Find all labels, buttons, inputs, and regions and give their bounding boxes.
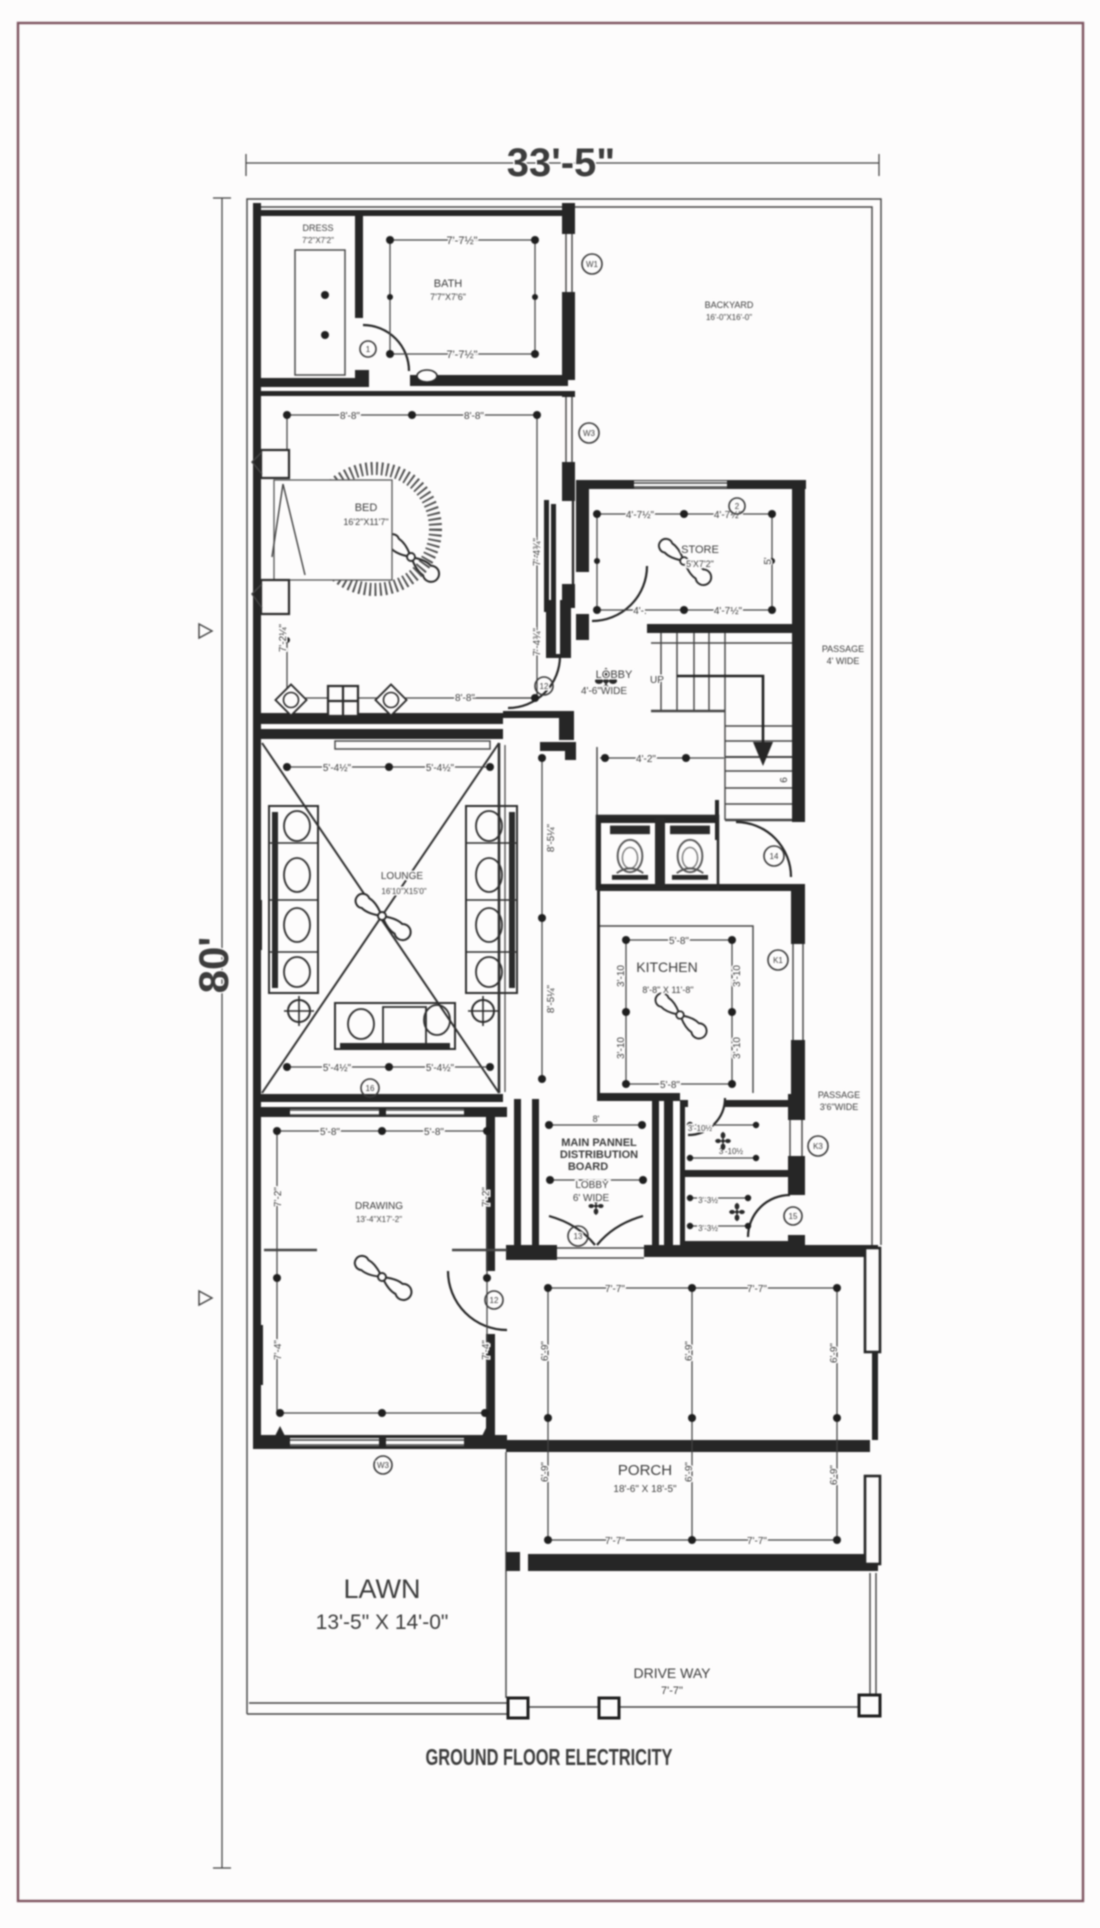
svg-text:PORCH: PORCH <box>618 1462 672 1479</box>
svg-text:W1: W1 <box>586 260 599 269</box>
svg-text:3'-10: 3'-10 <box>732 965 743 987</box>
svg-text:4'-6"WIDE: 4'-6"WIDE <box>581 686 627 697</box>
svg-text:8'-8": 8'-8" <box>455 693 475 704</box>
svg-text:7'-7": 7'-7" <box>747 1284 767 1295</box>
svg-text:6'-9": 6'-9" <box>829 1465 840 1485</box>
svg-text:33'-5": 33'-5" <box>507 141 616 185</box>
svg-text:4'-7½": 4'-7½" <box>714 510 743 521</box>
svg-text:15: 15 <box>789 1212 798 1221</box>
svg-text:BACKYARD: BACKYARD <box>705 300 754 310</box>
svg-text:3'-10: 3'-10 <box>616 1037 627 1059</box>
svg-text:BOARD: BOARD <box>568 1161 608 1173</box>
svg-text:6'-9": 6'-9" <box>540 1341 551 1361</box>
svg-text:W3: W3 <box>583 429 596 438</box>
svg-text:BED: BED <box>355 502 378 514</box>
svg-text:K1: K1 <box>773 956 783 965</box>
svg-text:12: 12 <box>490 1296 499 1305</box>
svg-text:18'-6" X 18'-5": 18'-6" X 18'-5" <box>613 1484 677 1495</box>
svg-text:5'-8": 5'-8" <box>320 1127 340 1138</box>
svg-text:LOUNGE: LOUNGE <box>381 871 424 882</box>
svg-text:DRIVE WAY: DRIVE WAY <box>633 1665 711 1681</box>
svg-text:5'-4½": 5'-4½" <box>426 1063 455 1074</box>
svg-text:1: 1 <box>366 345 371 354</box>
svg-text:7'-4¾": 7'-4¾" <box>532 627 543 656</box>
svg-text:16'10"X15'0": 16'10"X15'0" <box>381 887 426 896</box>
svg-text:7'-7½": 7'-7½" <box>446 349 477 361</box>
svg-text:LOBBY: LOBBY <box>575 1180 609 1191</box>
svg-text:7'-2": 7'-2" <box>481 1187 492 1207</box>
svg-text:14: 14 <box>770 852 779 861</box>
svg-text:3'-10: 3'-10 <box>616 965 627 987</box>
svg-text:7'-7": 7'-7" <box>661 1685 683 1697</box>
svg-text:8'-5¼": 8'-5¼" <box>545 823 557 852</box>
svg-text:LOBBY: LOBBY <box>596 669 633 681</box>
svg-text:6'-9": 6'-9" <box>684 1462 695 1482</box>
svg-text:13'-5" X 14'-0": 13'-5" X 14'-0" <box>316 1611 449 1634</box>
svg-text:7'-4": 7'-4" <box>481 1340 492 1360</box>
svg-text:7'-7": 7'-7" <box>605 1536 625 1547</box>
svg-text:DISTRIBUTION: DISTRIBUTION <box>560 1149 638 1161</box>
svg-text:5'-8": 5'-8" <box>424 1127 444 1138</box>
svg-text:3'-10: 3'-10 <box>732 1037 743 1059</box>
svg-text:4'-2": 4'-2" <box>636 754 656 765</box>
svg-text:BATH: BATH <box>434 278 463 290</box>
svg-text:5'X7'2": 5'X7'2" <box>686 559 714 569</box>
svg-text:16'2"X11'7": 16'2"X11'7" <box>343 517 388 527</box>
svg-text:8'-8" X 11'-8": 8'-8" X 11'-8" <box>642 985 693 995</box>
svg-text:5'-4½": 5'-4½" <box>323 1063 352 1074</box>
svg-text:4'-7½": 4'-7½" <box>626 510 655 521</box>
svg-text:4'-.: 4'-. <box>633 606 647 617</box>
svg-text:12: 12 <box>540 682 549 691</box>
svg-text:3'-3½: 3'-3½ <box>698 1196 718 1205</box>
svg-text:6'-9": 6'-9" <box>540 1462 551 1482</box>
svg-text:DRESS: DRESS <box>302 223 333 233</box>
svg-text:5': 5' <box>763 557 774 565</box>
svg-text:6' WIDE: 6' WIDE <box>573 1193 610 1204</box>
svg-text:3'-3½: 3'-3½ <box>698 1224 718 1233</box>
svg-text:2: 2 <box>735 502 740 511</box>
svg-text:13: 13 <box>574 1232 583 1241</box>
svg-text:7'-2¼": 7'-2¼" <box>277 623 289 652</box>
svg-text:STORE: STORE <box>681 544 719 556</box>
svg-text:16: 16 <box>366 1084 375 1093</box>
svg-text:7'-4": 7'-4" <box>273 1340 284 1360</box>
svg-text:5'-8": 5'-8" <box>660 1080 680 1091</box>
svg-text:7'2"X7'2": 7'2"X7'2" <box>302 236 334 245</box>
svg-text:7'-7": 7'-7" <box>747 1536 767 1547</box>
svg-text:7'-4¾": 7'-4¾" <box>532 537 543 566</box>
svg-text:3'-10½: 3'-10½ <box>688 1124 713 1133</box>
svg-text:PASSAGE: PASSAGE <box>822 644 864 654</box>
svg-text:8': 8' <box>593 1114 600 1124</box>
svg-text:8'-8": 8'-8" <box>340 411 360 422</box>
svg-text:6: 6 <box>779 777 790 783</box>
svg-text:DRAWING: DRAWING <box>355 1201 403 1212</box>
svg-text:6'-9": 6'-9" <box>684 1341 695 1361</box>
svg-text:UP: UP <box>650 675 664 686</box>
svg-text:K3: K3 <box>813 1142 823 1151</box>
svg-text:7'-7½": 7'-7½" <box>446 235 477 247</box>
svg-text:5'-8": 5'-8" <box>669 936 689 947</box>
svg-text:80': 80' <box>190 937 237 994</box>
svg-text:GROUND FLOOR ELECTRICITY: GROUND FLOOR ELECTRICITY <box>426 1744 673 1770</box>
svg-text:MAIN PANNEL: MAIN PANNEL <box>561 1137 637 1149</box>
svg-text:6'-9": 6'-9" <box>829 1343 840 1363</box>
svg-text:5'-4½": 5'-4½" <box>426 763 455 774</box>
svg-text:PASSAGE: PASSAGE <box>818 1090 860 1100</box>
svg-text:W3: W3 <box>377 1461 390 1470</box>
svg-text:7'7"X7'6": 7'7"X7'6" <box>430 292 466 302</box>
svg-text:KITCHEN: KITCHEN <box>636 959 697 975</box>
svg-text:4' WIDE: 4' WIDE <box>827 656 860 666</box>
svg-text:7'-7": 7'-7" <box>605 1284 625 1295</box>
svg-text:7'-2": 7'-2" <box>273 1187 284 1207</box>
svg-text:13'-4"X17'-2": 13'-4"X17'-2" <box>356 1215 402 1224</box>
svg-text:8'-5¼": 8'-5¼" <box>545 984 557 1013</box>
svg-text:4'-7½": 4'-7½" <box>714 606 743 617</box>
svg-text:8'-8": 8'-8" <box>464 411 484 422</box>
svg-text:5'-4½": 5'-4½" <box>323 763 352 774</box>
svg-text:16'-0"X16'-0": 16'-0"X16'-0" <box>706 313 752 322</box>
svg-text:LAWN: LAWN <box>343 1574 420 1604</box>
svg-text:3'6"WIDE: 3'6"WIDE <box>820 1102 858 1112</box>
